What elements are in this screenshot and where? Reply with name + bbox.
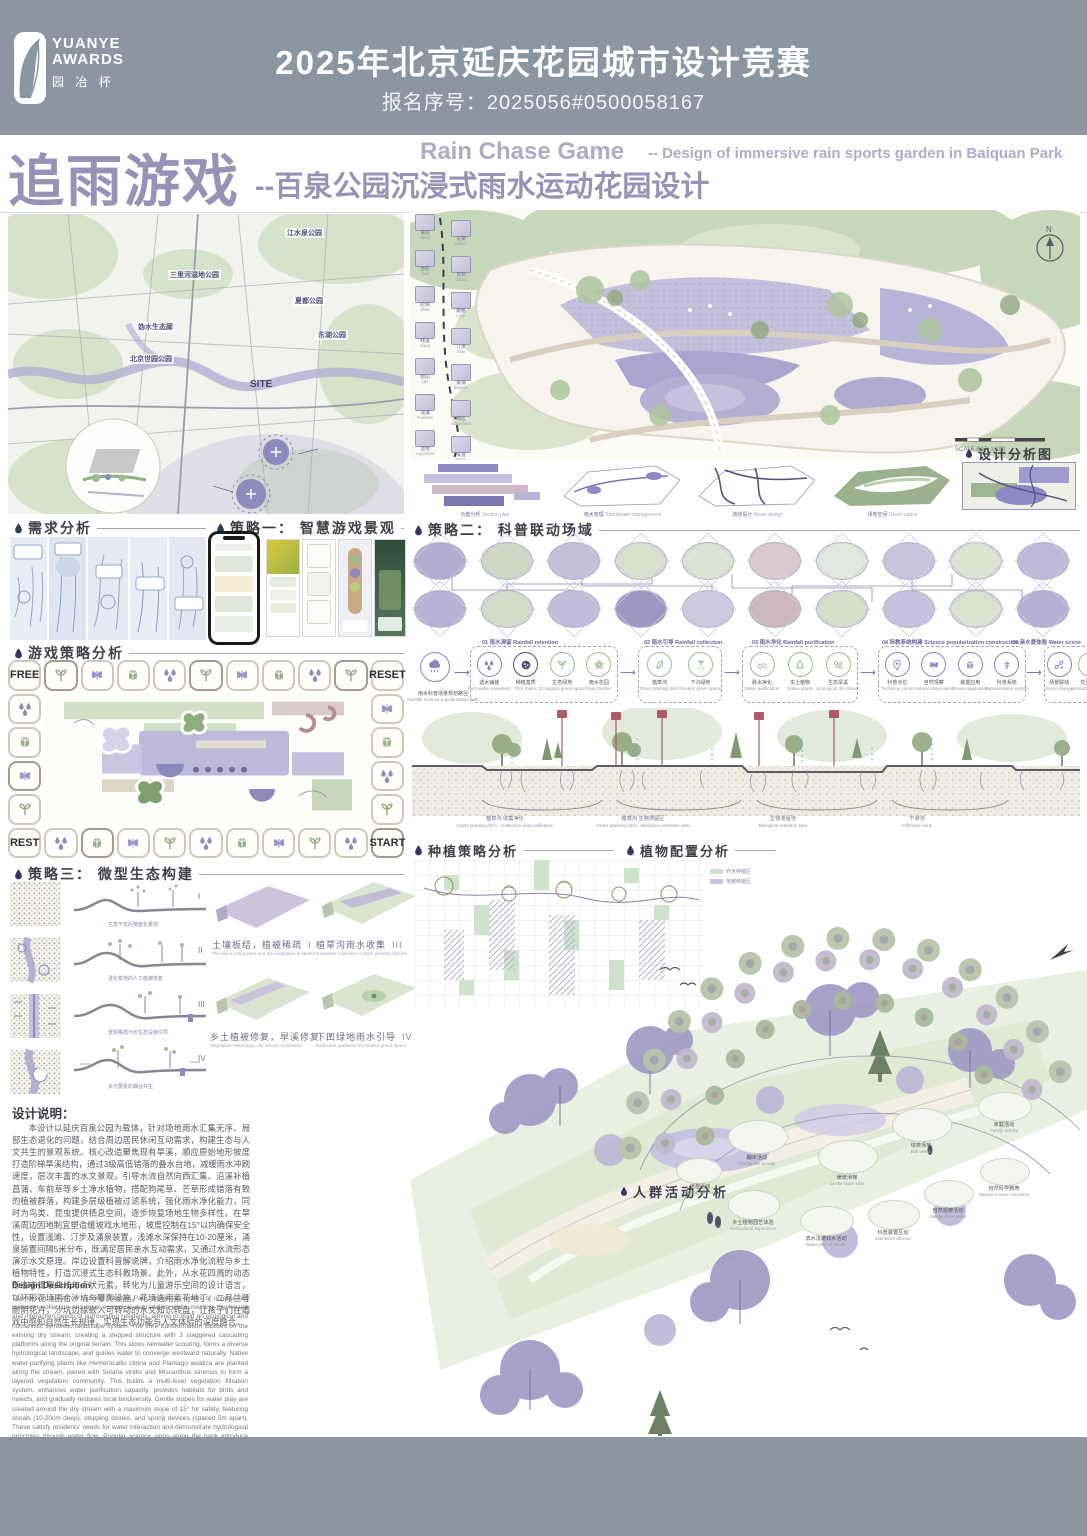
sketch-caption: 多元要素的耦合共生 — [108, 1083, 153, 1090]
board-tile — [262, 828, 295, 859]
scene-chip — [682, 590, 734, 628]
board-corner-free: FREE — [8, 660, 41, 691]
scene-chip — [1017, 542, 1069, 580]
analysis-caption-1: 功能分析 Section plan — [430, 511, 540, 518]
flow-group-title-2: 02 雨水引导 Rainfall collection — [644, 638, 722, 646]
flow-group-3: 跌水净化Water purification 本土植物Native plants… — [742, 646, 858, 703]
board-tile — [334, 828, 367, 859]
activity-bubble — [800, 1206, 854, 1236]
scene-chip — [816, 590, 868, 628]
activity-caption: 科普装置互动Interactive devices — [851, 1230, 935, 1242]
board-tile — [153, 828, 186, 859]
map-pin-icon — [891, 659, 903, 671]
design-analysis-label: 设计分析图 — [965, 444, 1053, 463]
board-corner-reset: RESET — [371, 660, 404, 691]
board-tile — [44, 660, 77, 691]
game-board: FREE RESET — [8, 660, 404, 858]
flow-group-5: 场景联动Scene linkage 交互体验Interactive Linkag… — [1044, 646, 1087, 703]
strategy3-section-II — [70, 934, 210, 976]
flow-arrow: ⟶ — [860, 666, 876, 679]
analysis-caption-4: 绿地空间 Green space — [830, 511, 955, 518]
droplet-icon — [414, 524, 423, 537]
comic-panel — [130, 537, 167, 640]
strategy3-section-III — [70, 988, 210, 1030]
flow-group-2: 植草沟Grass planting ditch 下沉绿地Sunken green… — [638, 646, 722, 703]
feature-tile: 跳格Loop — [448, 292, 474, 319]
sketch-numeral: III — [198, 1000, 205, 1009]
scene-link-icon — [1053, 659, 1065, 671]
board-tile — [8, 761, 41, 792]
app-screen-3 — [338, 539, 372, 637]
site-location-map: 江水泉公园 三里河湿地公园 夏都公园 妫水生态廊 东湖公园 北京世园公园 SIT… — [8, 214, 404, 514]
scene-chip — [883, 542, 935, 580]
green-space-icon — [556, 659, 568, 671]
site-map-art — [8, 214, 404, 514]
analysis-diagram-stormwater — [560, 462, 685, 508]
board-tile — [117, 828, 150, 859]
permeable-pavement-icon — [483, 659, 495, 671]
feature-tile: 浅滩Fountain — [412, 394, 438, 421]
flow-group-4: 科普点位Technical points 自然观察Natural observa… — [878, 646, 1026, 703]
strategy3-section-IV — [70, 1042, 210, 1084]
flow-group-title-5: 05 亲水景体验 Water scene — [1012, 638, 1081, 646]
droplet-icon — [14, 522, 23, 535]
activity-caption: 休憩活动Resting activities — [658, 1184, 742, 1196]
board-tile — [8, 727, 41, 758]
activity-bubble — [978, 1092, 1032, 1122]
grass-ditch-icon — [654, 659, 666, 671]
app-phone-mockup — [208, 531, 260, 645]
map-label-park2: 三里河湿地公园 — [168, 270, 221, 280]
master-plan: N SCALE BAR 1:100 泉房Stool 花架Gallery 台阶St… — [410, 210, 1080, 460]
plate-caption-1: 土壤板结，植被稀疏IThe soil is compacted and the … — [212, 938, 315, 956]
soil-matrix-icon — [520, 659, 532, 671]
analysis-diagram-green — [830, 462, 955, 508]
dry-stream-icon — [832, 659, 844, 671]
feature-tile: 泉涌Bounce — [448, 364, 474, 391]
droplet-icon — [14, 868, 23, 881]
feature-tile: 台阶Stair — [412, 250, 438, 277]
strategy3-plate-2 — [210, 972, 314, 1030]
feature-tile: 月洞Cloud — [448, 256, 474, 283]
flow-arrow: ⟶ — [724, 666, 740, 679]
board-tile — [371, 794, 404, 825]
strategy3-section-I — [70, 880, 210, 922]
activity-bubble — [980, 1158, 1030, 1186]
droplet-icon — [965, 448, 973, 459]
board-tile — [298, 828, 331, 859]
sketch-caption: 景观格局与水生态设施引导 — [108, 1029, 168, 1036]
map-label-site: SITE — [248, 379, 274, 390]
board-plan-art — [44, 694, 364, 822]
poster-subtitle-cn: --百泉公园沉浸式雨水运动花园设计 — [255, 163, 709, 205]
board-tile — [334, 660, 367, 691]
board-tile — [371, 761, 404, 792]
feature-tile: 假山Hill — [412, 358, 438, 385]
scene-chip — [615, 590, 667, 628]
svg-text:N: N — [1046, 225, 1052, 234]
title-block: 追雨游戏 --百泉公园沉浸式雨水运动花园设计 Rain Chase Game -… — [0, 135, 1087, 213]
activity-bubble — [728, 1190, 780, 1220]
scene-chip-row-1 — [414, 542, 1069, 580]
map-label-park3: 夏都公园 — [293, 296, 325, 306]
scene-chip — [883, 590, 935, 628]
map-label-park5: 北京世园公园 — [128, 354, 174, 364]
app-screen-1 — [266, 539, 300, 637]
board-tile — [81, 660, 114, 691]
flow-arrow: ⟶ — [1026, 666, 1042, 679]
activity-caption: 蹦床活动Trampoline activity — [715, 1155, 799, 1167]
board-corner-start: START — [371, 828, 404, 859]
activity-caption: 家庭活动Family activity — [962, 1122, 1046, 1134]
map-label-corridor: 妫水生态廊 — [136, 322, 175, 332]
board-tile — [226, 660, 259, 691]
sketch-numeral: I — [198, 892, 200, 901]
section-zone-1: 植草沟 收集净化Grass planting ditch · Collectio… — [450, 816, 560, 829]
board-tile — [189, 828, 222, 859]
comic-panel — [169, 537, 206, 640]
flow-source — [418, 652, 452, 682]
board-tile — [8, 694, 41, 725]
feature-tile: 场区Movement — [448, 400, 474, 427]
water-purification-icon — [756, 659, 768, 671]
app-screen-2 — [302, 539, 336, 637]
native-plants-icon — [794, 659, 806, 671]
feature-tile: 泉房Stool — [412, 214, 438, 241]
feature-tile: 花架Gallery — [448, 220, 474, 247]
activity-caption: 自然观察活动Nature observation — [906, 1208, 990, 1220]
strategy3-plate-4 — [316, 968, 420, 1026]
board-center-plan — [44, 694, 367, 825]
board-corner-rest: REST — [8, 828, 41, 859]
sketch-numeral: IV — [198, 1054, 206, 1063]
activity-caption: 乡土植物园艺体验Horticultural experience — [711, 1220, 795, 1232]
board-tile — [153, 660, 186, 691]
sketch-caption: 生态干扰后荒废化景观 — [108, 921, 158, 928]
plate-caption-3: 植草沟雨水收集IIIRainwater collected in grass p… — [316, 938, 407, 956]
board-tile — [371, 727, 404, 758]
analysis-caption-3: 流线设计 Route design — [695, 511, 820, 518]
feature-tile: 栈道Cond — [412, 322, 438, 349]
flow-group-title-3: 03 雨水净化 Rainfall purification — [752, 638, 835, 646]
plate-caption-4: 下凹绿地雨水引导IVRainwater guidance for sunken … — [316, 1030, 413, 1048]
comic-panel — [10, 537, 47, 640]
system-icon — [1001, 659, 1013, 671]
design-notes-en-title: Design Description — [12, 1280, 90, 1290]
analysis-caption-2: 雨水管理 Stormwater management — [560, 511, 685, 518]
flow-group-1: 透水铺装Permeable pavement 种植基质Rich matrix 生… — [470, 646, 618, 703]
scene-chip — [481, 542, 533, 580]
demand-comic-strip — [10, 537, 206, 640]
strategy3-plate-3 — [316, 876, 420, 934]
scene-chip — [481, 590, 533, 628]
scene-chip — [816, 542, 868, 580]
app-screen-4 — [374, 539, 406, 637]
scene-chip — [414, 542, 466, 580]
section-zone-2: 植草沟 生物滞留区Grass planting ditch · Biologic… — [588, 816, 698, 829]
feature-tile: 湿地Aquarium — [412, 430, 438, 457]
scene-chip — [682, 542, 734, 580]
flow-group-title-1: 01 雨水滞留 Rainfall retention — [482, 638, 558, 646]
droplet-icon — [620, 1186, 628, 1197]
analysis-diagram-function — [418, 462, 548, 508]
activity-bubble — [892, 1108, 952, 1142]
scene-chip — [749, 542, 801, 580]
section-demand-title: 需求分析 — [28, 518, 92, 538]
strategy3-plate-1 — [210, 880, 314, 938]
comic-panel — [88, 537, 127, 640]
section-zone-4: 下渗池Infiltration tank — [862, 816, 972, 829]
analysis-diagram-route — [695, 462, 820, 508]
activity-caption: 自然科学教育Natural science education — [962, 1186, 1046, 1198]
flow-group-title-4: 04 科教系统构建 Science popularization constru… — [882, 638, 1019, 646]
scene-chip — [548, 542, 600, 580]
map-label-park1: 江水泉公园 — [285, 228, 324, 238]
flow-arrow: ⟶ — [620, 666, 636, 679]
stream-cross-section — [412, 708, 1080, 816]
map-label-park4: 东湖公园 — [316, 330, 348, 340]
activity-caption: 缓坡滑梯Gentle slope slide — [805, 1175, 889, 1187]
poster-subtitle-en: -- Design of immersive rain sports garde… — [648, 145, 1062, 162]
poster: YUANYE AWARDS 园 冶 杯 2025年北京延庆花园城市设计竞赛 报名… — [0, 0, 1087, 1536]
analysis-diagram-composite — [962, 462, 1076, 510]
rain-garden-icon — [593, 659, 605, 671]
observation-butterfly-icon — [928, 659, 940, 671]
board-tile — [81, 828, 114, 859]
sketch-numeral: II — [198, 946, 202, 955]
master-plan-art: N SCALE BAR 1:100 — [410, 210, 1080, 460]
scene-chip — [414, 590, 466, 628]
scene-chip — [615, 542, 667, 580]
comic-panel — [49, 537, 86, 640]
scene-chip — [950, 590, 1002, 628]
scene-chip — [548, 590, 600, 628]
sunken-green-icon — [695, 659, 707, 671]
activity-caption: 球类场地Ball venue — [879, 1143, 963, 1155]
section-zone-3: 生物滞留池Biological retention tank — [728, 816, 838, 829]
board-tile — [44, 828, 77, 859]
board-tile — [262, 660, 295, 691]
scene-chip — [950, 542, 1002, 580]
activity-bubble — [728, 1120, 788, 1154]
section-demand: 需求分析 — [14, 518, 206, 538]
board-tile — [189, 660, 222, 691]
header-banner: YUANYE AWARDS 园 冶 杯 2025年北京延庆花园城市设计竞赛 报名… — [0, 0, 1087, 135]
rain-cloud-icon — [427, 659, 443, 675]
device-book-icon — [964, 659, 976, 671]
flow-arrow: ⟶ — [454, 666, 470, 679]
feature-tile: 阶梯Slide — [412, 286, 438, 313]
poster-title-en: Rain Chase Game — [420, 138, 624, 166]
scene-chip-row-2 — [414, 590, 1069, 628]
poster-title-cn: 追雨游戏 — [8, 137, 240, 218]
activity-bubble — [818, 1140, 878, 1174]
design-analysis-title: 设计分析图 — [978, 444, 1053, 463]
competition-title: 2025年北京延庆花园城市设计竞赛 — [0, 36, 1087, 84]
board-tile — [117, 660, 150, 691]
footer-band — [0, 1437, 1087, 1536]
plate-caption-2: 乡土植被修复，旱溪修复IIVegetation restoration, dry… — [210, 1030, 333, 1048]
board-tile — [226, 828, 259, 859]
board-tile — [8, 794, 41, 825]
science-flow: 雨水科普场景规划路径 Rainfall Science popularizati… — [412, 644, 1080, 706]
feature-tile: 汀步Side — [448, 328, 474, 355]
feature-tile: 溪道Drop — [448, 436, 474, 460]
sketch-caption: 退化荒地的人工植被恢复 — [108, 975, 163, 982]
scene-chip — [749, 590, 801, 628]
design-notes-cn-title: 设计说明： — [12, 1103, 75, 1122]
droplet-icon — [14, 647, 23, 660]
scene-chip — [1017, 590, 1069, 628]
registration-number: 报名序号：2025056#0500058167 — [0, 86, 1087, 115]
strategy3-texture-column — [8, 882, 64, 1094]
board-tile — [298, 660, 331, 691]
